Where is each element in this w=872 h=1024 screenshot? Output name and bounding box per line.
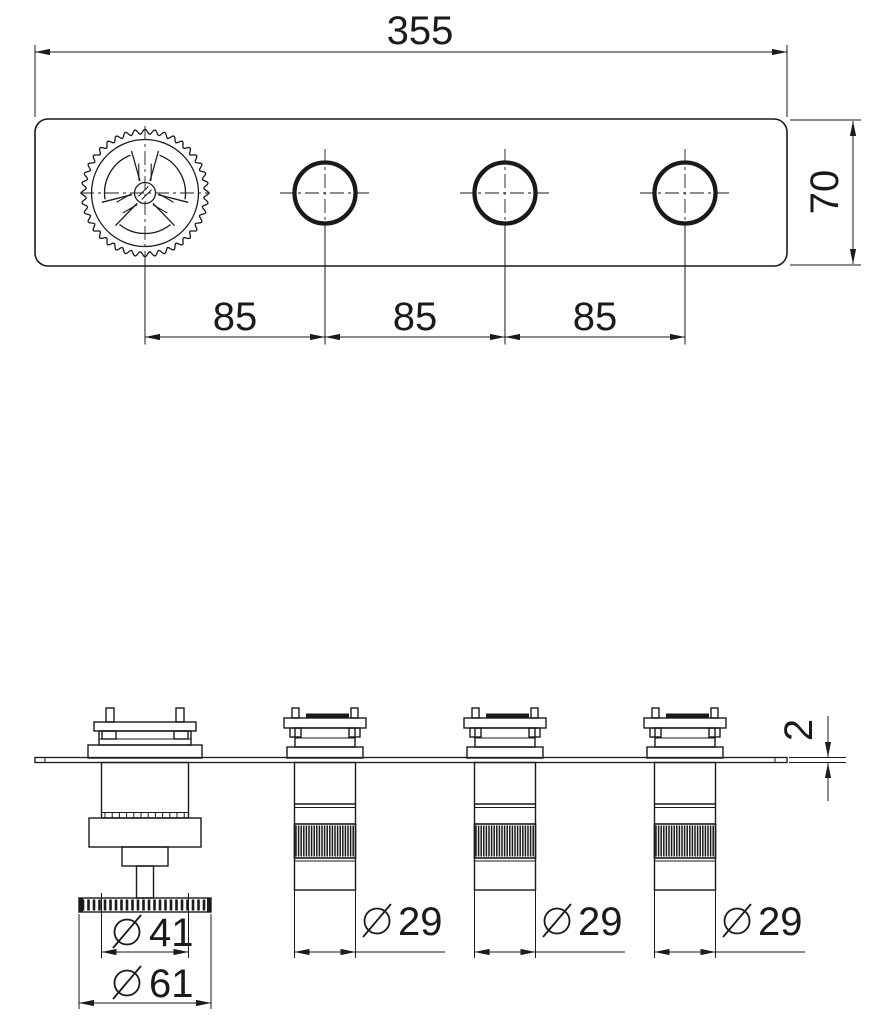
dim-knob-diameter-1: 29 xyxy=(363,900,443,944)
dim-spacing-1: 85 xyxy=(213,295,258,339)
dimension-355 xyxy=(35,45,787,117)
face-plate-front xyxy=(35,119,787,266)
dim-spacing-3: 85 xyxy=(573,295,618,339)
diameter-icon xyxy=(113,966,141,999)
dim-knob-diameter-2: 29 xyxy=(543,900,623,944)
drawing-geometry xyxy=(35,45,861,1009)
knob-front-2 xyxy=(460,149,550,345)
dim-knob-1-value: 29 xyxy=(398,900,443,944)
diameter-icon xyxy=(363,904,391,937)
dim-thermostat-outer-diameter: 61 xyxy=(113,962,194,1006)
dim-plate-thickness: 2 xyxy=(777,719,821,741)
dim-plate-height: 70 xyxy=(803,170,847,215)
dim-knob-2-value: 29 xyxy=(578,900,623,944)
thermostat-wheel-front xyxy=(80,126,210,345)
dim-knob-3-value: 29 xyxy=(758,900,803,944)
knob-front-1 xyxy=(280,149,370,345)
diameter-icon xyxy=(723,904,751,937)
dim-overall-width: 355 xyxy=(387,9,454,53)
dim-thermostat-inner-value: 41 xyxy=(149,911,194,955)
front-view xyxy=(35,45,861,345)
dim-thermostat-outer-value: 61 xyxy=(149,962,194,1006)
knob-front-3 xyxy=(640,149,730,345)
drawing-page: 355 70 85 85 85 2 41 61 29 29 xyxy=(0,0,872,1024)
valve-trim-technical-drawing: 355 70 85 85 85 2 41 61 29 29 xyxy=(0,0,872,1024)
dim-knob-diameter-3: 29 xyxy=(723,900,803,944)
dim-spacing-2: 85 xyxy=(393,295,438,339)
diameter-icon xyxy=(113,915,141,948)
diameter-icon xyxy=(543,904,571,937)
dim-thermostat-inner-diameter: 41 xyxy=(113,911,194,955)
